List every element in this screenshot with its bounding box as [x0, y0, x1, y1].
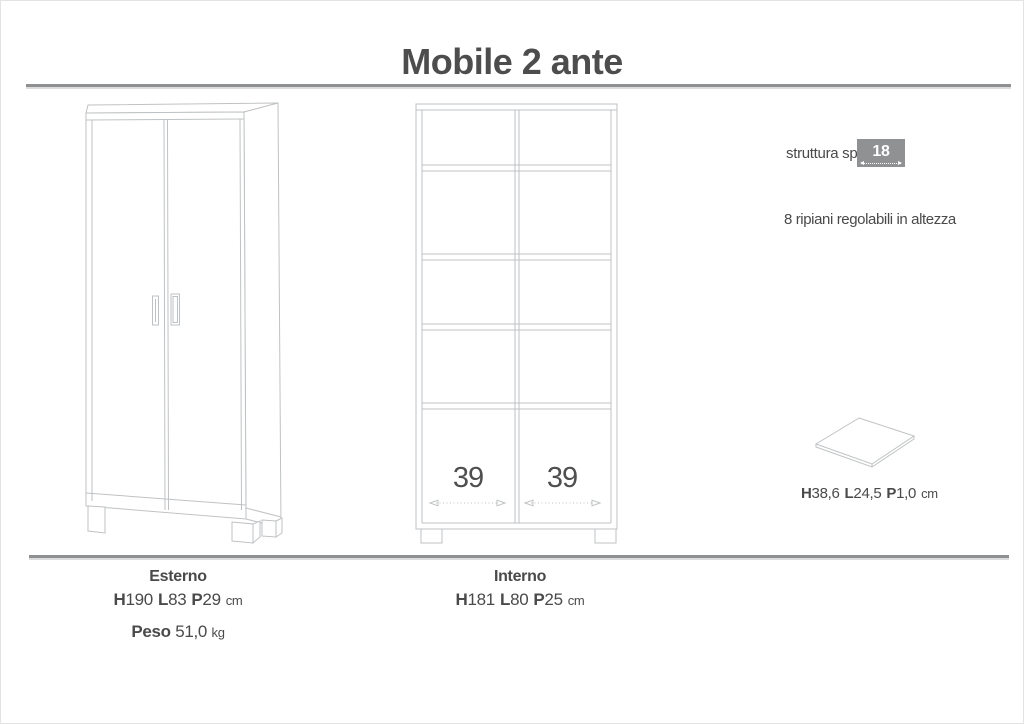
- esterno-l-label: L: [158, 590, 168, 609]
- thickness-dimension-arrow: [861, 163, 901, 164]
- esterno-h-value: 190: [126, 590, 153, 609]
- title-divider: [26, 84, 1011, 87]
- shelf-panel-drawing: [796, 409, 936, 484]
- structure-thickness-value: 18 mm: [857, 139, 905, 167]
- interno-unit: cm: [568, 593, 585, 608]
- shelf-h-value: 38,6: [812, 485, 840, 502]
- peso-row: Peso 51,0 kg: [63, 622, 293, 642]
- structure-thickness-label: struttura sp.: [786, 145, 861, 162]
- esterno-label: Esterno: [63, 568, 293, 586]
- interno-l-label: L: [500, 590, 510, 609]
- interno-l-value: 80: [510, 590, 528, 609]
- esterno-l-value: 83: [168, 590, 186, 609]
- interno-dimensions: H181L80P25cm: [406, 590, 634, 610]
- interno-p-value: 25: [544, 590, 562, 609]
- interno-p-label: P: [533, 590, 544, 609]
- adjustable-shelves-note: 8 ripiani regolabili in altezza: [784, 211, 956, 228]
- interior-width-left-value: 39: [438, 462, 498, 495]
- cabinet-exterior-drawing: [61, 91, 301, 561]
- shelf-h-label: H: [801, 485, 812, 502]
- cabinet-exterior-body: [86, 103, 281, 528]
- esterno-dimensions: H190L83P29cm: [63, 590, 293, 610]
- technical-sheet: Mobile 2 ante: [0, 0, 1024, 724]
- thickness-text: 18 mm: [867, 143, 895, 185]
- shelf-panel-dimensions: H38,6L24,5P1,0cm: [801, 485, 938, 502]
- interno-spec-block: Interno H181L80P25cm: [406, 568, 634, 610]
- esterno-p-label: P: [191, 590, 202, 609]
- esterno-unit: cm: [226, 593, 243, 608]
- peso-unit: kg: [212, 625, 225, 640]
- shelf-unit: cm: [921, 486, 938, 501]
- peso-value: 51,0: [175, 622, 207, 641]
- interno-label: Interno: [406, 568, 634, 586]
- peso-label: Peso: [131, 622, 170, 641]
- shelf-l-value: 24,5: [853, 485, 881, 502]
- esterno-h-label: H: [114, 590, 126, 609]
- interno-h-value: 181: [468, 590, 495, 609]
- shelf-p-value: 1,0: [896, 485, 916, 502]
- esterno-p-value: 29: [202, 590, 220, 609]
- shelf-panel-shape: [816, 418, 914, 467]
- page-title: Mobile 2 ante: [1, 41, 1023, 83]
- interno-h-label: H: [456, 590, 468, 609]
- interior-width-right-value: 39: [532, 462, 592, 495]
- footer-divider: [29, 555, 1009, 558]
- shelf-p-label: P: [886, 485, 896, 502]
- esterno-spec-block: Esterno H190L83P29cm Peso 51,0 kg: [63, 568, 293, 642]
- interior-feet: [421, 529, 616, 543]
